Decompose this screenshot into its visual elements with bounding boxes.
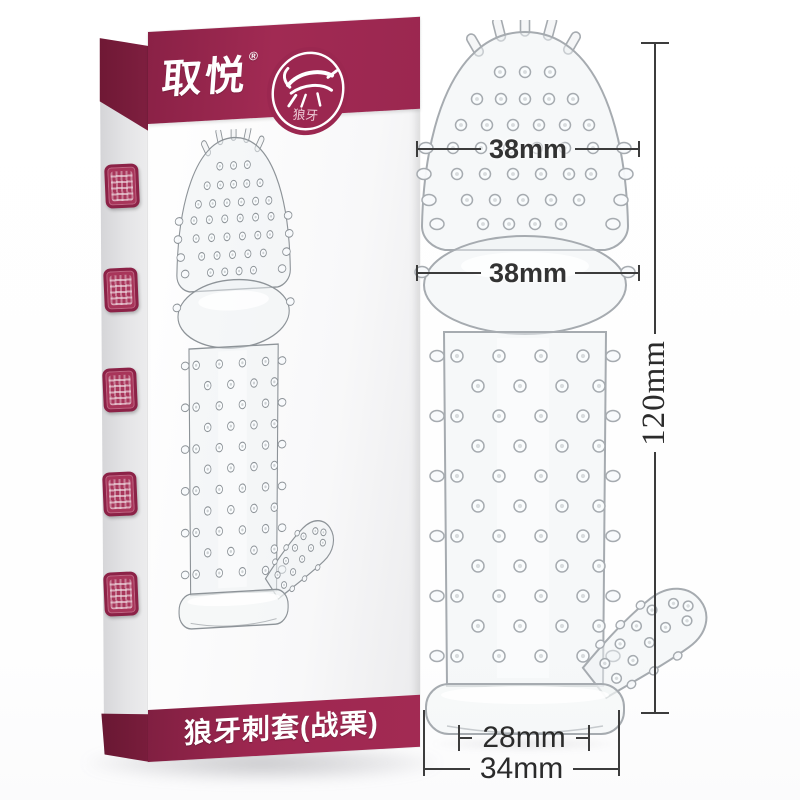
dim-line bbox=[418, 272, 481, 274]
dim-line bbox=[576, 737, 588, 739]
dim-line bbox=[418, 148, 481, 150]
seal-stamp-1 bbox=[104, 163, 140, 208]
dimension-head-width: 38mm bbox=[416, 131, 640, 167]
dim-line bbox=[575, 272, 638, 274]
dim-tick bbox=[638, 141, 640, 157]
dim-tick bbox=[641, 712, 669, 714]
dim-line bbox=[460, 737, 472, 739]
seal-stamp-2 bbox=[103, 267, 139, 312]
dim-line bbox=[654, 452, 656, 712]
seal-stamp-5 bbox=[103, 571, 139, 616]
seal-stamp-3 bbox=[102, 367, 138, 412]
seal-stamp-4 bbox=[102, 471, 138, 516]
dim-tick bbox=[618, 710, 620, 776]
dimension-total-length-label: 120mm bbox=[636, 340, 673, 446]
product-showcase: 取悦® 狼牙 bbox=[0, 0, 800, 800]
dimension-head-width-label: 38mm bbox=[481, 134, 575, 165]
registered-mark: ® bbox=[249, 49, 259, 64]
badge-label: 狼牙 bbox=[292, 107, 319, 123]
brand-name: 取悦 bbox=[160, 53, 249, 102]
dimension-bulb-width: 38mm bbox=[416, 255, 640, 291]
dim-tick bbox=[638, 265, 640, 281]
brand-logo: 取悦® bbox=[160, 42, 259, 106]
dimension-base-width-label: 34mm bbox=[470, 752, 573, 786]
dimension-inner-diameter-label: 28mm bbox=[472, 721, 575, 755]
product-photo bbox=[395, 20, 740, 745]
dimension-bulb-width-label: 38mm bbox=[481, 258, 575, 289]
box-product-title: 狼牙刺套(战栗) bbox=[184, 707, 379, 749]
dim-line bbox=[573, 768, 618, 770]
dim-tick bbox=[588, 725, 590, 751]
dim-line bbox=[654, 44, 656, 334]
dim-line bbox=[575, 148, 638, 150]
box-product-illustration bbox=[162, 123, 352, 639]
dim-line bbox=[425, 768, 470, 770]
box-front-panel: 取悦® 狼牙 bbox=[148, 17, 420, 762]
